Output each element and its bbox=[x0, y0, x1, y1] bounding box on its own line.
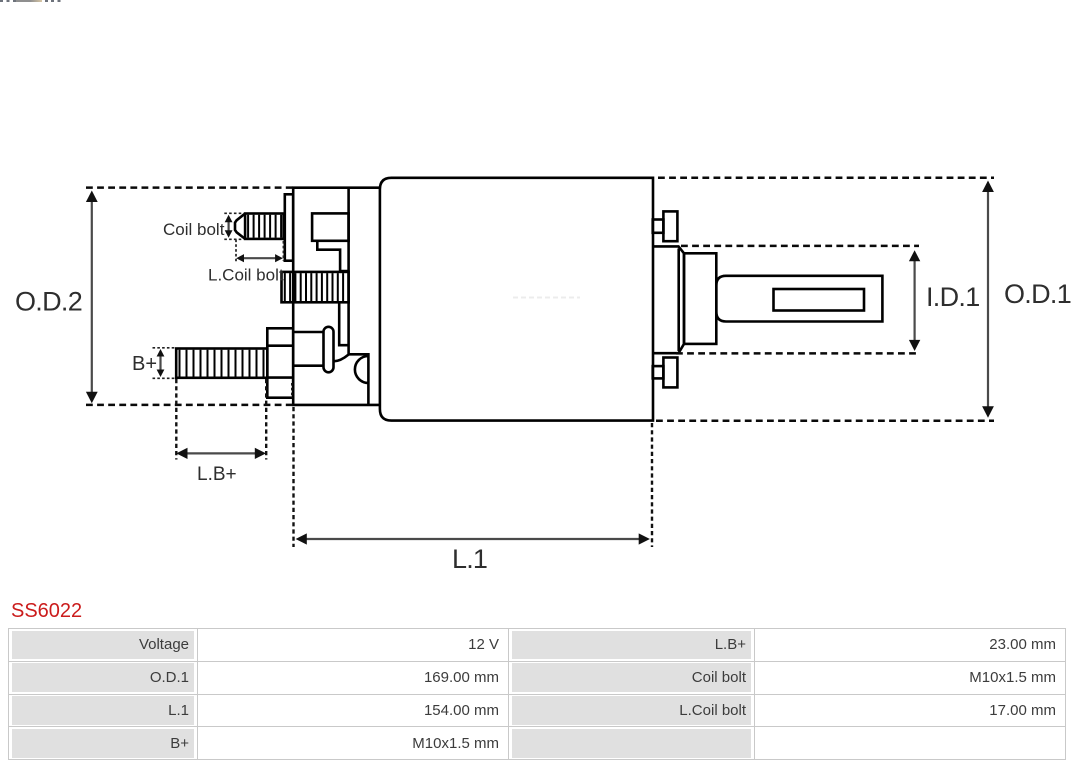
svg-text:L.1: L.1 bbox=[452, 544, 487, 574]
svg-text:O.D.2: O.D.2 bbox=[15, 287, 82, 317]
svg-text:B+: B+ bbox=[132, 353, 157, 375]
svg-text:L.B+: L.B+ bbox=[197, 464, 237, 485]
svg-text:O.D.1: O.D.1 bbox=[1004, 279, 1071, 309]
svg-text:Coil bolt: Coil bolt bbox=[163, 220, 225, 239]
svg-text:L.Coil bolt: L.Coil bolt bbox=[208, 266, 284, 285]
svg-text:I.D.1: I.D.1 bbox=[926, 282, 980, 312]
